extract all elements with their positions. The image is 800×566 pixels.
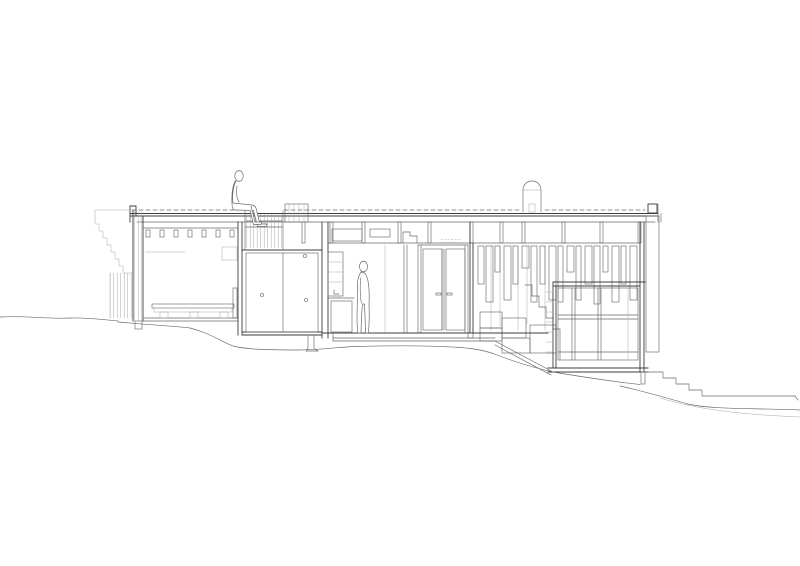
ceiling-bulkheads <box>332 229 462 243</box>
right-cladding-band <box>646 216 659 352</box>
left-wall-footing <box>135 321 142 329</box>
terrain-under-building <box>118 322 640 385</box>
ceiling-joist-ticks <box>146 230 234 237</box>
light-well-hatch <box>246 214 282 248</box>
ceiling-box <box>222 247 237 260</box>
panel-knob <box>260 293 263 296</box>
sink-cabinet <box>328 252 354 332</box>
floor-structure <box>322 333 553 375</box>
under-stair-boxes <box>480 312 556 353</box>
room-footing <box>641 372 645 384</box>
left-exterior-wall <box>133 211 143 329</box>
double-glazed-doors <box>418 245 468 333</box>
corridor-left-wall <box>322 222 328 338</box>
panel-knob <box>304 298 307 301</box>
door-handle <box>447 293 452 295</box>
mullion <box>404 245 407 333</box>
terrain-left <box>0 317 118 321</box>
door-side-wall <box>470 222 473 333</box>
light-well-curb <box>285 204 308 222</box>
roof-vent-cylinder <box>523 181 541 212</box>
panel-knob <box>303 254 306 257</box>
exterior-hillside-stairs <box>645 372 798 400</box>
timber-stack <box>95 210 133 273</box>
centre-panel-block <box>242 250 322 351</box>
dividing-wall <box>238 222 242 335</box>
faucet <box>334 290 339 294</box>
panel-block-foot <box>306 335 318 351</box>
standing-person <box>357 261 369 333</box>
roof-joist-posts <box>302 222 641 243</box>
left-room-floor <box>143 318 238 321</box>
door-handle <box>436 293 441 295</box>
interior-stair <box>480 285 560 360</box>
left-screen-band <box>110 273 133 320</box>
room-base <box>548 368 648 372</box>
slatted-bench <box>152 304 234 318</box>
left-room <box>143 222 242 335</box>
architectural-section-sheet <box>0 0 800 566</box>
terrain-right-lower <box>660 398 800 417</box>
edge-ladder-ticks <box>546 292 553 352</box>
door-wall-foot <box>468 333 473 338</box>
terrain-right-upper <box>620 386 800 410</box>
bench-end-panel <box>233 288 237 318</box>
roof-assembly <box>130 204 661 243</box>
section-drawing-canvas <box>0 0 800 566</box>
terrain <box>0 317 800 417</box>
panel-pair <box>246 253 318 332</box>
